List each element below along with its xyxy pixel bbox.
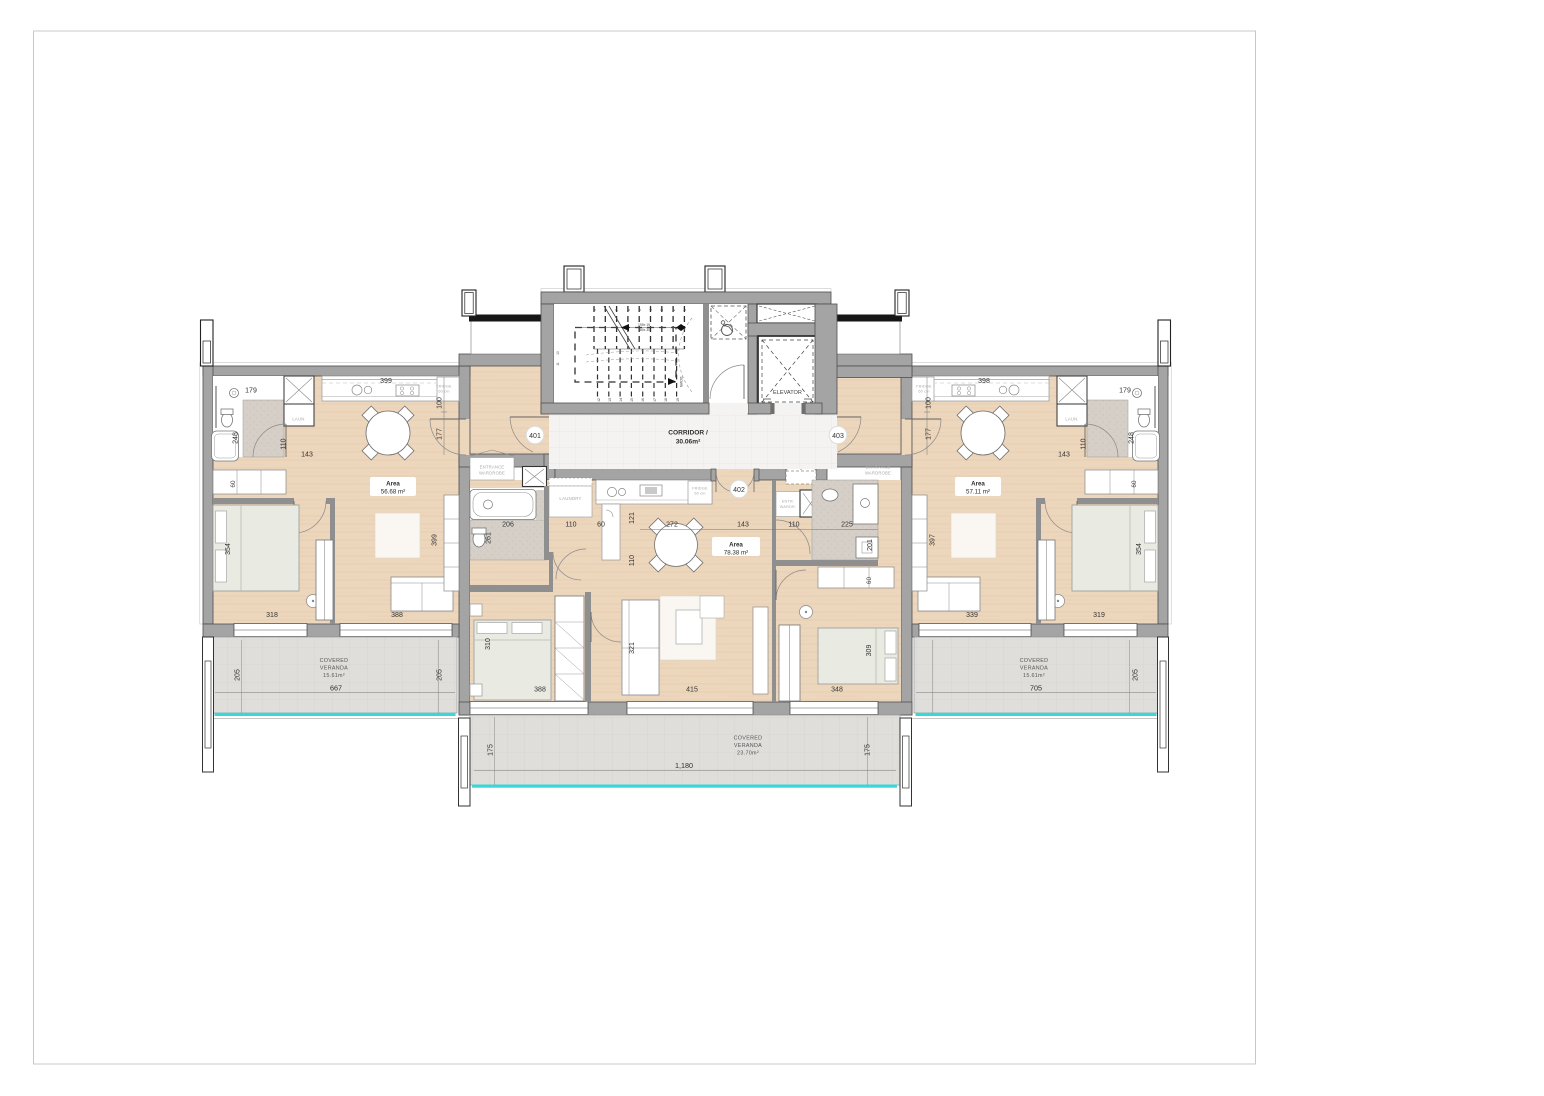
svg-text:206: 206 <box>502 522 514 529</box>
svg-text:ENTR.: ENTR. <box>782 500 794 504</box>
svg-text:VERANDA: VERANDA <box>320 666 348 672</box>
svg-text:78.38 m²: 78.38 m² <box>724 550 748 557</box>
svg-text:401: 401 <box>529 433 541 440</box>
svg-text:179: 179 <box>1119 388 1131 395</box>
svg-text:354: 354 <box>1136 543 1143 555</box>
svg-text:COVERED: COVERED <box>1020 658 1049 664</box>
svg-text:399: 399 <box>432 534 439 546</box>
svg-text:2: 2 <box>672 309 676 311</box>
svg-text:175: 175 <box>865 744 872 756</box>
svg-text:205: 205 <box>1133 669 1140 681</box>
svg-text:WARDROBE: WARDROBE <box>865 471 891 476</box>
svg-text:11: 11 <box>556 362 560 366</box>
svg-text:348: 348 <box>831 687 843 694</box>
svg-text:WARDR.: WARDR. <box>780 505 796 509</box>
svg-text:201: 201 <box>867 539 874 551</box>
svg-text:402: 402 <box>733 487 745 494</box>
svg-text:205: 205 <box>437 669 444 681</box>
svg-text:60 cm: 60 cm <box>438 390 449 394</box>
svg-text:415: 415 <box>686 687 698 694</box>
svg-text:9: 9 <box>593 309 597 311</box>
svg-text:110: 110 <box>565 522 576 529</box>
svg-text:399: 399 <box>380 378 392 385</box>
svg-text:ENTRANCE: ENTRANCE <box>866 465 891 470</box>
svg-text:15.61m²: 15.61m² <box>1023 673 1045 679</box>
svg-text:225: 225 <box>841 522 853 529</box>
svg-text:FRIDGE: FRIDGE <box>916 385 932 389</box>
svg-text:16: 16 <box>641 398 645 402</box>
svg-text:18: 18 <box>664 398 668 402</box>
svg-text:261: 261 <box>486 532 493 544</box>
svg-text:60: 60 <box>597 522 605 529</box>
svg-text:110: 110 <box>1081 438 1088 449</box>
svg-text:205: 205 <box>235 669 242 681</box>
svg-text:Area: Area <box>386 481 400 488</box>
svg-text:FRIDGE: FRIDGE <box>692 487 708 491</box>
svg-text:180x 30: 180x 30 <box>638 328 650 332</box>
svg-text:VERANDA: VERANDA <box>1020 666 1048 672</box>
svg-text:Area: Area <box>729 542 743 549</box>
svg-text:17: 17 <box>653 398 657 402</box>
svg-text:15: 15 <box>630 398 634 402</box>
svg-text:LAUNDRY: LAUNDRY <box>559 496 581 501</box>
svg-text:30.06m²: 30.06m² <box>676 439 701 446</box>
svg-text:LAUN.: LAUN. <box>292 417 305 422</box>
svg-text:60: 60 <box>866 577 873 585</box>
svg-text:5: 5 <box>638 309 642 311</box>
svg-text:100: 100 <box>437 397 444 409</box>
svg-text:COVERED: COVERED <box>320 658 349 664</box>
svg-text:177: 177 <box>926 428 933 440</box>
svg-text:60 cm: 60 cm <box>694 492 705 496</box>
svg-text:FRIDGE: FRIDGE <box>436 385 452 389</box>
svg-text:ENTRANCE: ENTRANCE <box>480 465 505 470</box>
svg-text:319: 319 <box>1093 612 1105 619</box>
svg-text:398: 398 <box>978 378 990 385</box>
svg-text:309: 309 <box>866 645 873 657</box>
svg-text:COVERED: COVERED <box>734 736 763 742</box>
svg-text:667: 667 <box>330 684 342 693</box>
svg-text:7: 7 <box>615 309 619 311</box>
svg-text:1: 1 <box>683 309 687 311</box>
svg-text:321: 321 <box>629 642 636 654</box>
svg-text:60 cm: 60 cm <box>918 390 929 394</box>
svg-text:175: 175 <box>488 744 495 756</box>
svg-text:12: 12 <box>597 398 601 402</box>
svg-text:705: 705 <box>1030 684 1042 693</box>
svg-text:339: 339 <box>966 612 978 619</box>
svg-text:ELEVATOR: ELEVATOR <box>773 390 802 396</box>
svg-text:23.70m²: 23.70m² <box>737 751 759 757</box>
svg-text:CORRIDOR /: CORRIDOR / <box>668 430 708 437</box>
svg-text:6: 6 <box>627 309 631 311</box>
svg-text:143: 143 <box>737 522 749 529</box>
svg-text:WARDROBE: WARDROBE <box>479 471 505 476</box>
svg-text:248: 248 <box>233 432 240 444</box>
svg-text:110: 110 <box>629 555 636 566</box>
svg-text:19: 19 <box>676 398 680 402</box>
svg-text:60: 60 <box>230 480 237 488</box>
svg-text:8: 8 <box>604 309 608 311</box>
svg-text:272: 272 <box>666 522 678 529</box>
svg-text:110: 110 <box>281 438 288 449</box>
svg-text:354: 354 <box>225 543 232 555</box>
svg-text:DOWN: DOWN <box>679 377 683 388</box>
svg-text:56.68 m²: 56.68 m² <box>381 489 405 496</box>
svg-text:10: 10 <box>556 351 560 355</box>
svg-text:VERANDA: VERANDA <box>734 743 762 749</box>
svg-text:60: 60 <box>1131 480 1138 488</box>
svg-text:199x 15: 199x 15 <box>638 323 650 327</box>
svg-text:397: 397 <box>930 534 937 546</box>
svg-text:177: 177 <box>437 428 444 440</box>
svg-text:318: 318 <box>266 612 278 619</box>
svg-text:100: 100 <box>926 397 933 409</box>
svg-text:13: 13 <box>608 398 612 402</box>
svg-text:14: 14 <box>619 398 623 402</box>
svg-text:179: 179 <box>245 388 257 395</box>
svg-text:15.61m²: 15.61m² <box>323 673 345 679</box>
svg-text:121: 121 <box>629 512 636 524</box>
svg-text:388: 388 <box>391 612 403 619</box>
svg-text:388: 388 <box>534 687 546 694</box>
svg-text:143: 143 <box>1058 452 1070 459</box>
svg-text:310: 310 <box>485 638 492 650</box>
svg-text:4: 4 <box>649 309 653 311</box>
svg-text:248: 248 <box>1129 432 1136 444</box>
svg-text:3: 3 <box>660 309 664 311</box>
svg-text:143: 143 <box>301 452 313 459</box>
svg-text:LAUN.: LAUN. <box>1065 417 1078 422</box>
svg-text:110: 110 <box>788 522 799 529</box>
svg-text:57.11 m²: 57.11 m² <box>966 489 990 496</box>
svg-text:Area: Area <box>971 481 985 488</box>
svg-text:403: 403 <box>832 433 844 440</box>
svg-text:1,180: 1,180 <box>675 761 693 770</box>
